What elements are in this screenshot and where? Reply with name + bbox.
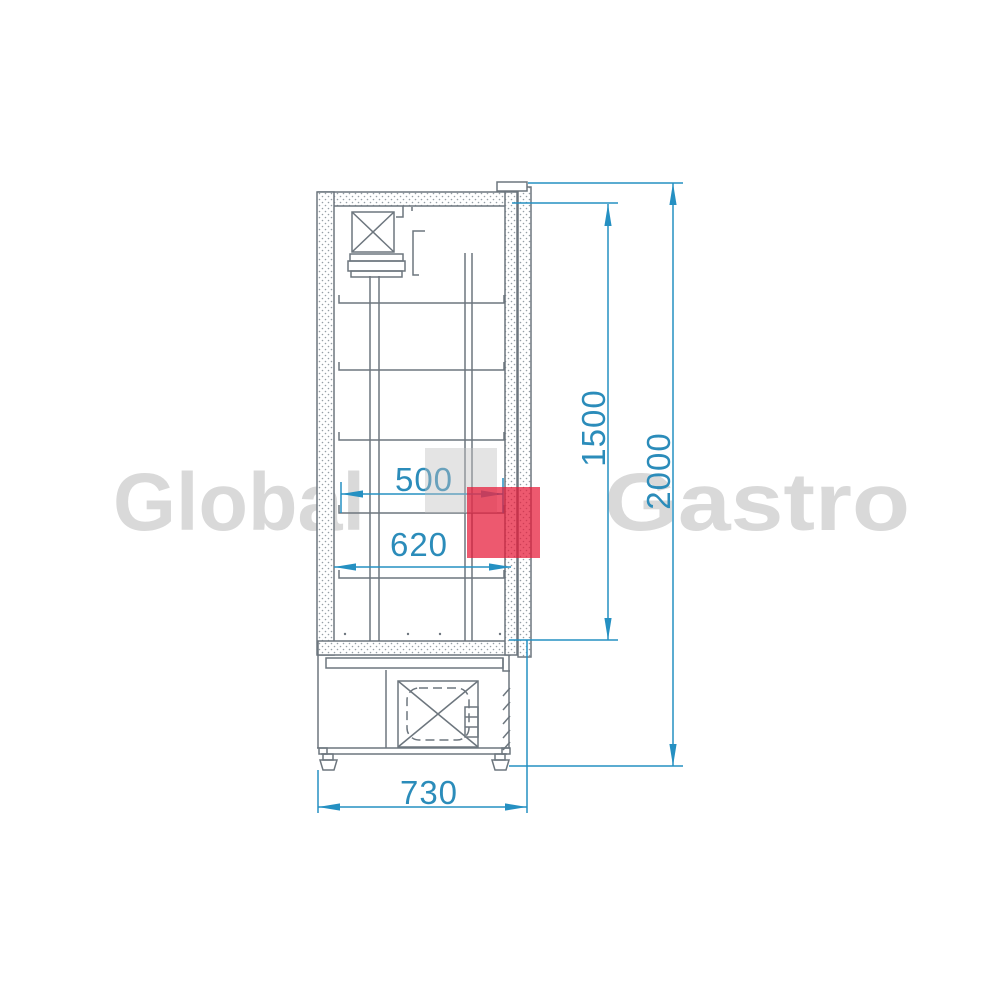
shelf-3 xyxy=(339,432,504,440)
feet xyxy=(320,754,509,770)
logo-red-square xyxy=(467,487,540,558)
pipe-bracket xyxy=(413,231,425,275)
dimension-1500-label: 1500 xyxy=(575,389,612,466)
drip-tray xyxy=(326,658,503,668)
machine-compartment xyxy=(317,655,510,754)
wall-left xyxy=(317,192,334,655)
interior-pipes xyxy=(370,253,472,641)
wall-top xyxy=(318,192,510,206)
wall-right xyxy=(505,192,517,655)
shelf-2 xyxy=(339,362,504,370)
door-top-cap xyxy=(497,182,527,191)
cabinet-walls xyxy=(317,182,531,657)
ceiling-bracket xyxy=(396,206,403,217)
product-drawing-image: Global Gastro xyxy=(0,0,1000,1000)
dimension-2000-label: 2000 xyxy=(640,432,677,509)
foot-right xyxy=(492,760,509,770)
floor-dots xyxy=(344,633,501,635)
dimension-620-label: 620 xyxy=(390,526,448,563)
foot-left xyxy=(320,760,337,770)
wall-bottom xyxy=(318,641,510,655)
dimension-overall-height: 2000 xyxy=(509,183,683,766)
shelf-5 xyxy=(339,570,504,578)
door-panel xyxy=(518,187,531,657)
dimension-730-label: 730 xyxy=(400,774,458,811)
evaporator-unit xyxy=(348,206,425,277)
technical-drawing-svg: Global Gastro xyxy=(0,0,1000,1000)
shelf-1 xyxy=(339,295,504,303)
